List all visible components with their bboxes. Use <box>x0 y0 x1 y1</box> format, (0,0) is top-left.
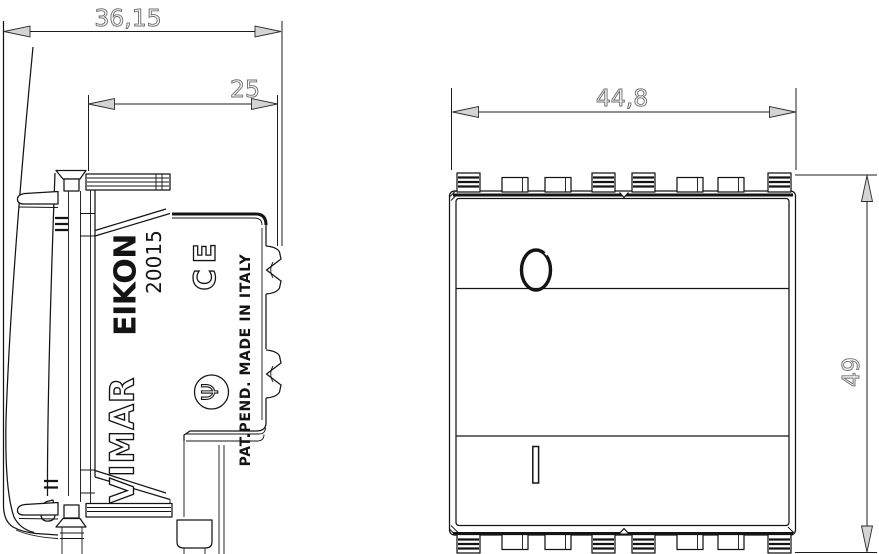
plain-tab-top <box>545 178 571 193</box>
ribbed-tab-bottom <box>592 535 615 554</box>
plate-outer-outline <box>450 191 796 535</box>
rocker-back-edge <box>4 21 59 535</box>
plain-tab-top <box>677 178 703 193</box>
plain-tab-top <box>502 178 528 193</box>
body-top-edge <box>172 214 266 225</box>
frame-bottom-clip-cap <box>56 519 86 528</box>
certification-mark: Ψ <box>195 375 229 409</box>
body-top-band <box>86 174 170 190</box>
plain-tab-bottom <box>545 535 571 550</box>
dimension-body-depth: 25 <box>89 75 278 246</box>
model-number-label: 20015 <box>142 230 166 294</box>
spring-clip-bottom <box>266 350 281 398</box>
ce-mark: CE <box>188 237 222 290</box>
mechanism-body: EIKON 20015 CE Ψ PAT.PEND. MADE IN ITALY… <box>86 174 281 554</box>
series-label: EIKON <box>109 234 144 336</box>
plain-tab-top <box>718 178 744 193</box>
ribbed-tab-bottom <box>457 535 480 554</box>
rocker-front-face <box>6 47 34 533</box>
arrowhead-right <box>255 26 281 37</box>
body-bottom-band <box>86 504 172 518</box>
certification-symbol: Ψ <box>199 383 224 400</box>
frame-top-arm <box>17 192 58 205</box>
marking-on-symbol <box>533 447 539 484</box>
plain-tab-bottom <box>718 535 744 550</box>
arrowhead-top <box>862 176 873 202</box>
dimension-text-width: 44,8 <box>596 84 648 112</box>
ribbed-tab-bottom <box>768 535 791 554</box>
dimension-height: 49 <box>795 175 877 553</box>
arrowhead-bottom <box>862 526 873 552</box>
side-view: EIKON 20015 CE Ψ PAT.PEND. MADE IN ITALY… <box>4 4 283 554</box>
switch-technical-drawing: EIKON 20015 CE Ψ PAT.PEND. MADE IN ITALY… <box>0 0 879 554</box>
arrowhead-left <box>4 26 30 37</box>
dimension-text-body-depth: 25 <box>230 75 260 103</box>
brand-label: VIMAR <box>103 377 142 504</box>
ribbed-tab-top <box>457 173 480 192</box>
rocker-inner-face <box>48 173 56 496</box>
ribbed-tab-bottom <box>632 535 655 554</box>
frame-top-clip-stem <box>64 179 79 191</box>
mounting-frame <box>17 171 95 554</box>
plain-tab-bottom <box>502 535 528 550</box>
dimension-text-height: 49 <box>837 357 865 387</box>
arrowhead-right <box>770 107 796 118</box>
arrowhead-left <box>89 99 115 110</box>
front-view: 44,8 49 <box>450 84 878 553</box>
arrowhead-left <box>453 107 479 118</box>
frame-bottom-clip-stem <box>64 505 79 518</box>
ribbed-tab-top <box>632 173 655 192</box>
dimension-width: 44,8 <box>452 84 797 170</box>
technical-drawing-page: EIKON 20015 CE Ψ PAT.PEND. MADE IN ITALY… <box>0 0 879 554</box>
cover-plate <box>450 191 796 536</box>
ribbed-tab-top <box>592 173 615 192</box>
patent-origin-label: PAT.PEND. MADE IN ITALY <box>238 253 254 466</box>
dimension-text-total-depth: 36,15 <box>94 4 161 32</box>
on-bar <box>533 447 539 484</box>
dimension-total-depth: 36,15 <box>4 4 282 246</box>
frame-top-clip-cap <box>56 171 86 180</box>
frame-bottom-arm <box>17 503 58 516</box>
plain-tab-bottom <box>677 535 703 550</box>
rocker-side-profile <box>4 21 59 539</box>
ribbed-tab-top <box>768 173 791 192</box>
frame-foot-lines <box>60 528 84 554</box>
spring-clip-top <box>266 246 281 294</box>
